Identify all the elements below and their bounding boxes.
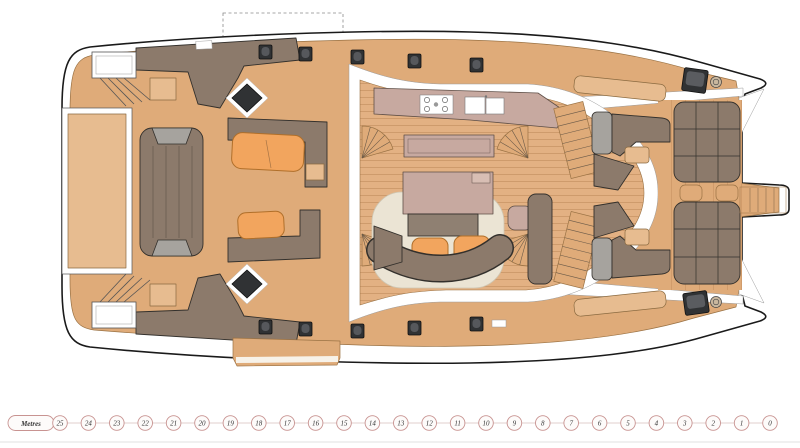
scale-tick: 21 [166,416,181,431]
deck-hatch [259,45,272,59]
svg-text:7: 7 [569,419,573,427]
scale-tick: 23 [110,416,125,431]
deck-hatch [470,317,483,331]
svg-text:5: 5 [626,419,630,427]
scale-label: Metres [20,420,41,428]
deck-step-bottom [492,320,506,327]
deck-hatch [351,324,364,338]
deck-plan-canvas: Metres 25 24 23 22 21 20 19 18 17 16 15 … [0,0,800,448]
svg-text:4: 4 [655,419,659,427]
svg-text:6: 6 [598,419,602,427]
scale-tick: 3 [678,416,693,431]
scale-tick: 5 [621,416,636,431]
sink [465,95,504,114]
scale-tick: 16 [308,416,323,431]
scale-tick: 11 [450,416,465,431]
svg-text:23: 23 [113,419,121,427]
deck-hatch [259,320,272,334]
svg-text:2: 2 [711,419,715,427]
sunpad-tray-left [680,185,702,201]
svg-text:8: 8 [541,419,545,427]
scale-tick: 20 [195,416,210,431]
svg-text:12: 12 [426,419,434,427]
scale-tick: 18 [251,416,266,431]
chaise-table-top [306,164,324,180]
side-table-forward-bottom [150,284,176,306]
svg-text:0: 0 [768,419,772,427]
chaise-cushion-bottom [237,211,284,239]
chaise-group-bottom [228,210,320,262]
scale-tick: 22 [138,416,153,431]
helm-seat-top [592,112,612,154]
svg-text:25: 25 [57,419,65,427]
scale-tick: 15 [337,416,352,431]
scale-tick: 24 [81,416,96,431]
sunpad-tray-right [716,185,738,201]
deck-hatch [299,322,312,336]
dining-table-notch [472,173,490,183]
svg-text:13: 13 [397,419,405,427]
scale-tick: 12 [422,416,437,431]
svg-text:10: 10 [483,419,491,427]
winch-bottom [711,297,722,308]
svg-text:11: 11 [454,419,460,427]
catamaran-deck-plan: Metres 25 24 23 22 21 20 19 18 17 16 15 … [0,0,800,448]
foredeck-sunpad [68,114,126,268]
svg-text:16: 16 [312,419,320,427]
scale-tick: 19 [223,416,238,431]
scale-tick: 6 [592,416,607,431]
svg-text:1: 1 [740,419,744,427]
svg-text:14: 14 [369,419,377,427]
svg-text:15: 15 [341,419,349,427]
scale-tick: 13 [394,416,409,431]
helm-seat-bottom [592,238,612,280]
scale-label-pill: Metres [8,416,54,431]
svg-text:19: 19 [227,419,235,427]
scale-tick: 2 [706,416,721,431]
aft-table-bottom [625,229,649,245]
scale-tick: 14 [365,416,380,431]
deck-hatch [299,47,312,61]
scale-tick: 17 [280,416,295,431]
svg-text:21: 21 [170,419,177,427]
bow-lounger [140,128,203,256]
svg-text:22: 22 [142,419,150,427]
aft-table-top [625,147,649,163]
scale-tick: 10 [479,416,494,431]
stern-hatch-bottom [683,290,710,315]
deck-hatch [470,58,483,72]
scale-tick: 7 [564,416,579,431]
scale-tick: 9 [507,416,522,431]
deck-hatch [408,54,421,68]
svg-text:24: 24 [85,419,93,427]
boarding-platform [233,338,340,366]
svg-text:3: 3 [682,419,687,427]
deck-hatch [351,50,364,64]
deck-step-top [196,41,212,50]
galley-island [404,135,494,157]
stern-hatch-top [681,67,708,93]
stove [420,95,453,114]
svg-text:18: 18 [255,419,263,427]
metre-scale: Metres 25 24 23 22 21 20 19 18 17 16 15 … [8,416,777,431]
scale-tick: 4 [649,416,664,431]
coffee-table [408,214,478,236]
winch-top [711,77,722,88]
deck-hatch [408,321,421,335]
side-table-forward-top [150,78,176,100]
sunpad-top [674,102,740,182]
sunpad-bottom [674,202,740,284]
salon-sofa-right [528,194,552,284]
svg-text:9: 9 [513,419,517,427]
scale-tick: 1 [734,416,749,431]
scale-tick: 0 [763,416,778,431]
scale-tick: 8 [536,416,551,431]
svg-text:17: 17 [284,419,292,427]
scale-tick: 25 [53,416,68,431]
svg-text:20: 20 [199,419,207,427]
